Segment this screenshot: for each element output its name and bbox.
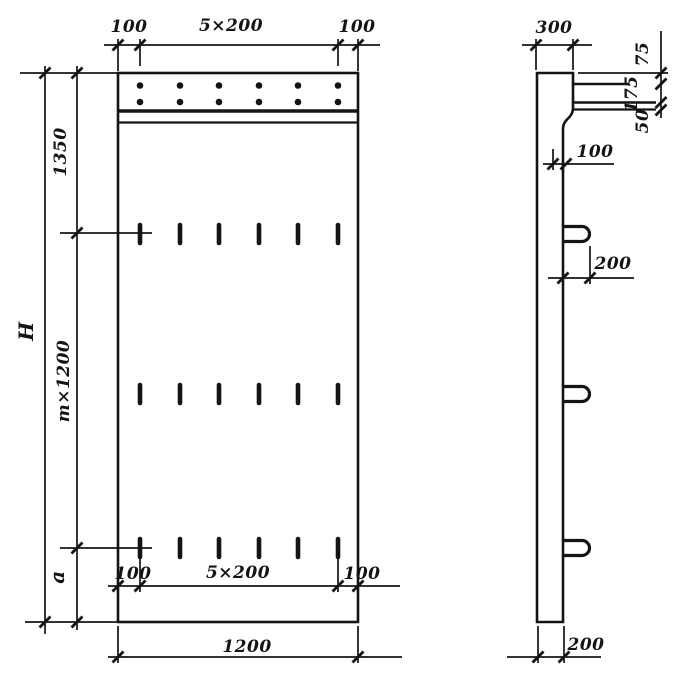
dim-label-bottom-200: 200 — [567, 635, 605, 655]
side-step-dimension: 100 — [543, 142, 614, 170]
dim-label-75: 75 — [633, 42, 653, 67]
dim-label-height-total: H — [14, 321, 38, 342]
dim-label-50: 50 — [633, 109, 653, 134]
drawing-sheet: 100 5×200 100 H 1350 m×1200 a — [0, 0, 700, 700]
panel-outline — [118, 73, 358, 622]
dim-label-1200: 1200 — [222, 637, 271, 657]
dim-label-top-left: 100 — [111, 17, 148, 37]
dim-label-loop-200: 200 — [594, 254, 632, 274]
side-bottom-dimension: 200 — [507, 626, 605, 663]
side-loop-1 — [563, 227, 590, 242]
dim-label-bottom-inner-right: 100 — [344, 564, 381, 584]
dim-label-top-right: 100 — [339, 17, 376, 37]
side-view: 300 75 175 50 100 200 — [507, 18, 668, 663]
dim-label-bottom-inner-left: 100 — [115, 564, 152, 584]
front-view: 100 5×200 100 H 1350 m×1200 a — [14, 16, 402, 663]
dim-label-a: a — [45, 570, 69, 583]
dim-label-1350: 1350 — [51, 127, 71, 176]
dim-label-step-100: 100 — [577, 142, 614, 162]
side-right-dimensions: 75 175 50 — [578, 31, 668, 133]
panel-drawing: 100 5×200 100 H 1350 m×1200 a — [0, 0, 700, 700]
loop-row-3 — [140, 539, 338, 557]
front-bottom-overall-dimension: 1200 — [108, 626, 402, 663]
dim-label-175: 175 — [622, 76, 642, 113]
dim-label-300: 300 — [536, 18, 573, 38]
loop-row-2 — [140, 385, 338, 403]
dim-label-top-middle: 5×200 — [199, 16, 263, 36]
loop-row-1 — [140, 225, 338, 243]
side-loop-dimension: 200 — [548, 246, 634, 284]
front-left-dimensions: H 1350 m×1200 a — [14, 66, 152, 634]
dim-label-bottom-inner-middle: 5×200 — [206, 563, 270, 583]
side-loop-2 — [563, 387, 590, 402]
front-bottom-inner-dimension: 100 5×200 100 — [108, 558, 400, 592]
front-top-dimension: 100 5×200 100 — [104, 16, 380, 71]
side-top-dimension: 300 — [522, 18, 592, 70]
dim-label-m1200: m×1200 — [54, 340, 74, 423]
side-loop-3 — [563, 541, 590, 556]
anchor-dots — [137, 82, 342, 105]
